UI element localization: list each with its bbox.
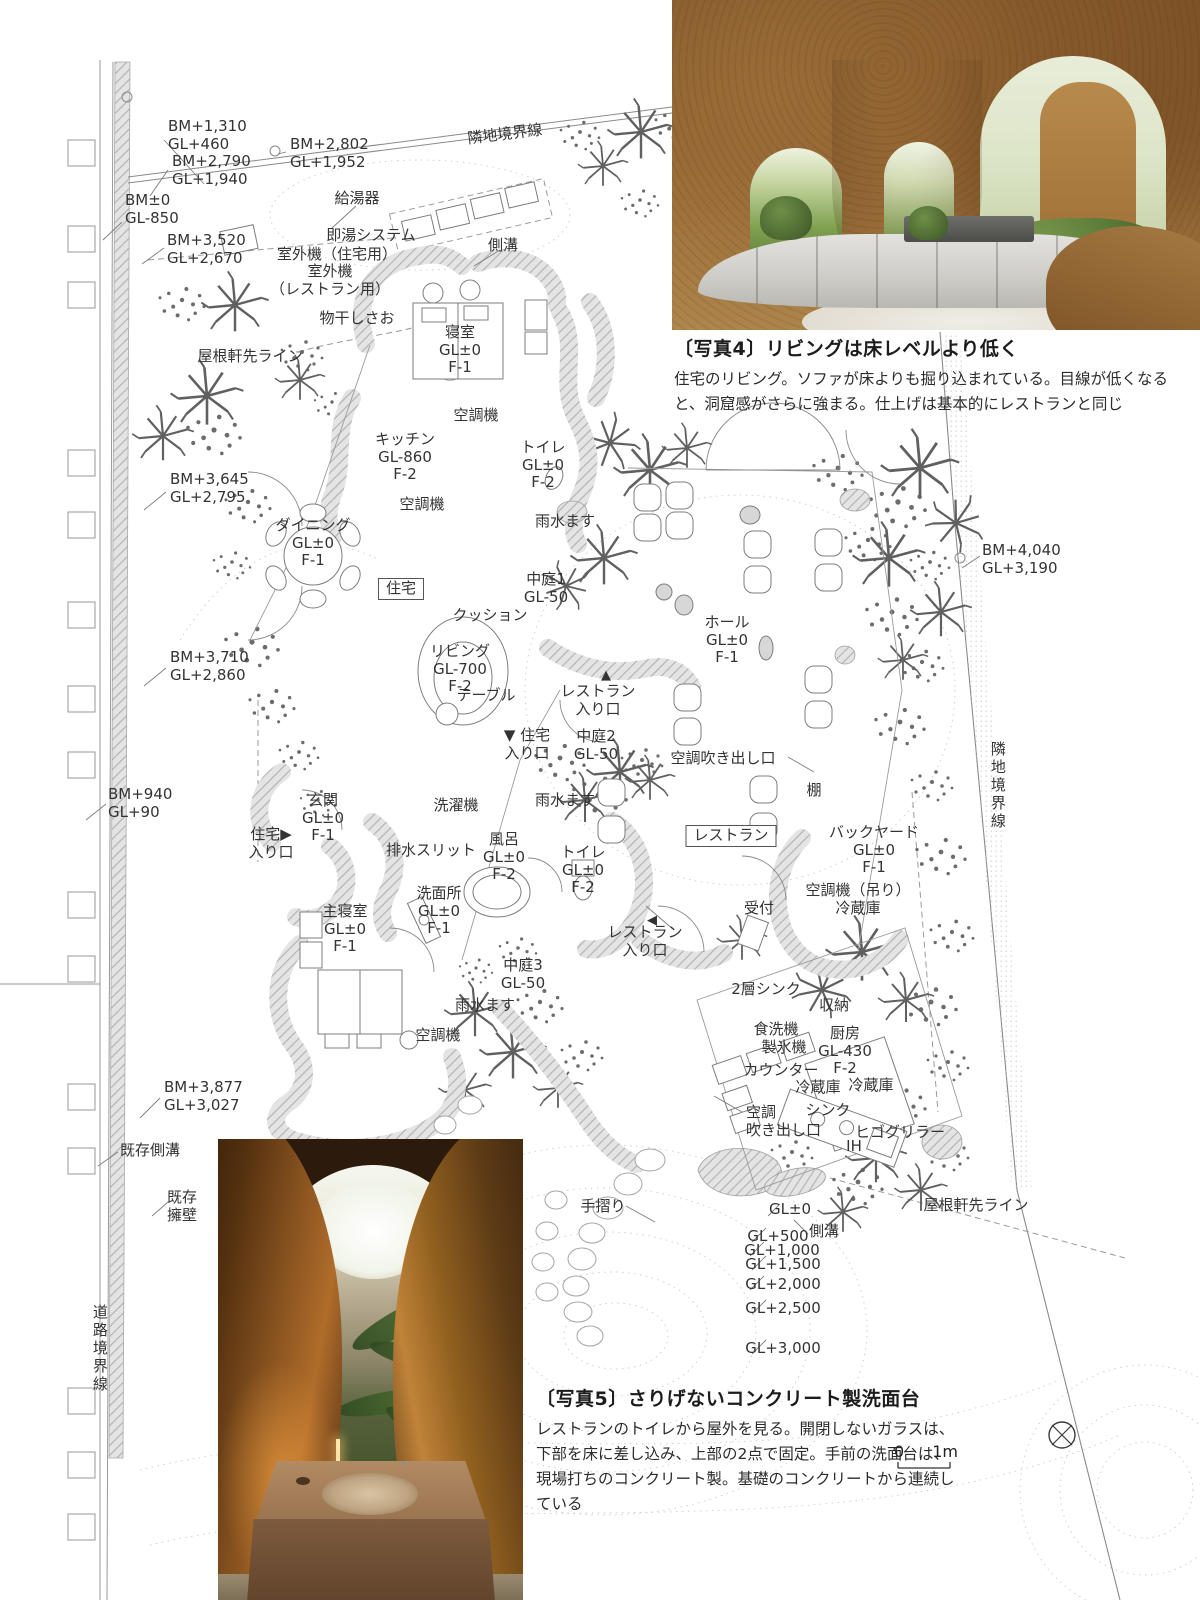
label-kuchoki-bed2: 空調機 — [415, 1027, 460, 1045]
label-nakaniwa-3: 中庭3 GL-50 — [501, 957, 545, 992]
caption-photo4: 〔写真4〕リビングは床レベルより低く 住宅のリビング。ソファが床よりも掘り込まれ… — [674, 334, 1171, 417]
label-furo: 風呂 GL±0 F-2 — [483, 831, 525, 884]
label-bm-3645: BM+3,645 GL+2,795 — [170, 471, 249, 506]
label-ih: IH — [846, 1138, 862, 1156]
label-shokusenki: 食洗機 — [753, 1021, 798, 1039]
label-sokko-bottom: 側溝 — [809, 1223, 839, 1241]
label-usui-3: 雨水ます — [455, 997, 515, 1015]
label-bm-1310: BM+1,310 GL+460 — [168, 118, 247, 153]
scale-one-meter: 1m — [932, 1442, 958, 1461]
label-bm-4040: BM+4,040 GL+3,190 — [982, 542, 1061, 577]
potted-plant — [760, 196, 812, 240]
label-hall: ホール GL±0 F-1 — [704, 614, 749, 667]
label-reizoko-2: 冷蔵庫 — [848, 1077, 893, 1095]
label-rinchi-right: 隣地境界線 — [988, 741, 1006, 831]
label-gl-3000: GL+3,000 — [745, 1340, 821, 1358]
label-shushinshitsu: 主寝室 GL±0 F-1 — [322, 903, 367, 956]
label-bm-2802: BM+2,802 GL+1,952 — [290, 136, 369, 171]
caption-photo5-title: 〔写真5〕さりげないコンクリート製洗面台 — [536, 1384, 964, 1411]
label-senmenjo: 洗面所 GL±0 F-1 — [416, 885, 461, 938]
label-niso-sink: 2層シンク — [731, 981, 801, 999]
label-shitsugaiki-restaurant: 室外機 （レストラン用） — [270, 263, 390, 298]
caption-photo4-title: 〔写真4〕リビングは床レベルより低く — [674, 334, 1171, 361]
photo-living-cave — [672, 0, 1200, 330]
label-higo-griller: ヒゴグリラー — [855, 1124, 945, 1142]
label-shinshitsu: 寝室 GL±0 F-1 — [439, 324, 481, 377]
scale-zero: 0 — [894, 1442, 904, 1461]
road-west-boundary — [0, 60, 132, 1600]
label-tana: 棚 — [806, 782, 821, 800]
scale-bar: 0 1m — [894, 1442, 958, 1461]
label-bm-3710: BM+3,710 GL+2,860 — [170, 649, 249, 684]
label-kison-sokko: 既存側溝 — [120, 1142, 180, 1160]
label-doro-kyokai: 道路境界線 — [90, 1304, 108, 1394]
north-compass-icon — [1049, 1422, 1075, 1448]
label-bm-2790: BM+2,790 GL+1,940 — [172, 153, 251, 188]
label-jutaku: 住宅 — [378, 578, 424, 600]
label-dining: ダイニング GL±0 F-1 — [275, 517, 350, 570]
label-usui-1: 雨水ます — [535, 513, 595, 531]
label-bm-3877: BM+3,877 GL+3,027 — [164, 1079, 243, 1114]
label-gl-2500: GL+2,500 — [745, 1300, 821, 1318]
label-kitchen: キッチン GL-860 F-2 — [375, 431, 435, 484]
caption-photo4-body: 住宅のリビング。ソファが床よりも掘り込まれている。目線が低くなると、洞窟感がさら… — [674, 367, 1171, 417]
label-kucho-fukidashi-2: 空調 吹き出し口 — [746, 1104, 821, 1139]
caption-photo5-body: レストランのトイレから屋外を見る。開閉しないガラスは、下部を床に差し込み、上部の… — [536, 1417, 964, 1517]
label-tesuri: 手摺り — [580, 1198, 625, 1216]
label-seihyoki: 製氷機 — [761, 1039, 806, 1057]
label-kucho-fukidashi-1: 空調吹き出し口 — [670, 750, 775, 768]
label-kuchoki-bedroom: 空調機 — [453, 407, 498, 425]
potted-plant — [908, 206, 948, 240]
label-toilet-center: トイレ GL±0 F-2 — [560, 844, 605, 897]
label-gl-1500: GL+1,500 — [745, 1256, 821, 1274]
label-genkan: 玄関 GL±0 F-1 — [302, 792, 344, 845]
label-resto-entrance-2: レストラン 入り口 — [607, 924, 682, 959]
label-kuchoki-kitchen: 空調機 — [399, 496, 444, 514]
label-jutaku-entrance-2: 住宅▶ 入り口 — [248, 826, 293, 861]
label-monohoshi: 物干しさお — [319, 310, 394, 328]
label-gl-2000: GL+2,000 — [745, 1276, 821, 1294]
label-kison-yoheki: 既存 擁壁 — [167, 1189, 197, 1224]
label-yane-nokisaki-right: 屋根軒先ライン — [923, 1197, 1028, 1215]
label-toilet-north: トイレ GL±0 F-2 — [520, 439, 565, 492]
label-bm-3520: BM+3,520 GL+2,670 — [167, 232, 246, 267]
label-backyard: バックヤード GL±0 F-1 — [829, 824, 919, 877]
photo-washbasin-cave — [218, 1139, 523, 1600]
label-cushion: クッション — [452, 607, 527, 625]
label-haisui-slit: 排水スリット — [386, 842, 476, 860]
label-bm-0: BM±0 GL-850 — [125, 192, 179, 227]
label-nakaniwa-2: 中庭2 GL-50 — [574, 728, 618, 763]
label-yane-nokisaki-left: 屋根軒先ライン — [197, 348, 302, 366]
label-restaurant: レストラン — [685, 825, 776, 847]
label-table: テーブル — [456, 687, 515, 705]
sink-bowl — [322, 1473, 418, 1515]
label-kuchoki-tsuri: 空調機（吊り） 冷蔵庫 — [805, 882, 910, 917]
label-uketsuke: 受付 — [744, 900, 774, 918]
label-resto-entrance-1: レストラン 入り口 — [560, 683, 635, 718]
caption-photo5-tag: 〔写真5〕 — [536, 1388, 628, 1410]
label-reizoko-1: 冷蔵庫 — [795, 1079, 840, 1097]
caption-photo4-title-text: リビングは床レベルより低く — [766, 338, 1019, 360]
label-shuno: 収納 — [819, 997, 849, 1015]
label-kyutoki: 給湯器 — [334, 190, 379, 208]
label-gl-0: GL±0 — [769, 1201, 811, 1219]
label-nakaniwa-1: 中庭1 GL-50 — [524, 571, 568, 606]
label-sokuyu-system: 即湯システム — [326, 227, 416, 245]
label-usui-2: 雨水ます — [535, 792, 595, 810]
washbasin-body — [246, 1519, 496, 1600]
caption-photo4-tag: 〔写真4〕 — [674, 338, 766, 360]
label-chubo: 厨房 GL-430 F-2 — [818, 1025, 872, 1078]
magazine-page: 〔写真4〕リビングは床レベルより低く 住宅のリビング。ソファが床よりも掘り込まれ… — [0, 0, 1200, 1600]
caption-photo5-title-text: さりげないコンクリート製洗面台 — [628, 1388, 921, 1410]
concrete-washbasin — [256, 1461, 486, 1521]
label-bm-940: BM+940 GL+90 — [108, 786, 172, 821]
label-sentakuki: 洗濯機 — [433, 797, 478, 815]
label-jutaku-entrance-1: ▼ 住宅 入り口 — [504, 727, 550, 762]
label-sokko-top: 側溝 — [488, 237, 518, 255]
